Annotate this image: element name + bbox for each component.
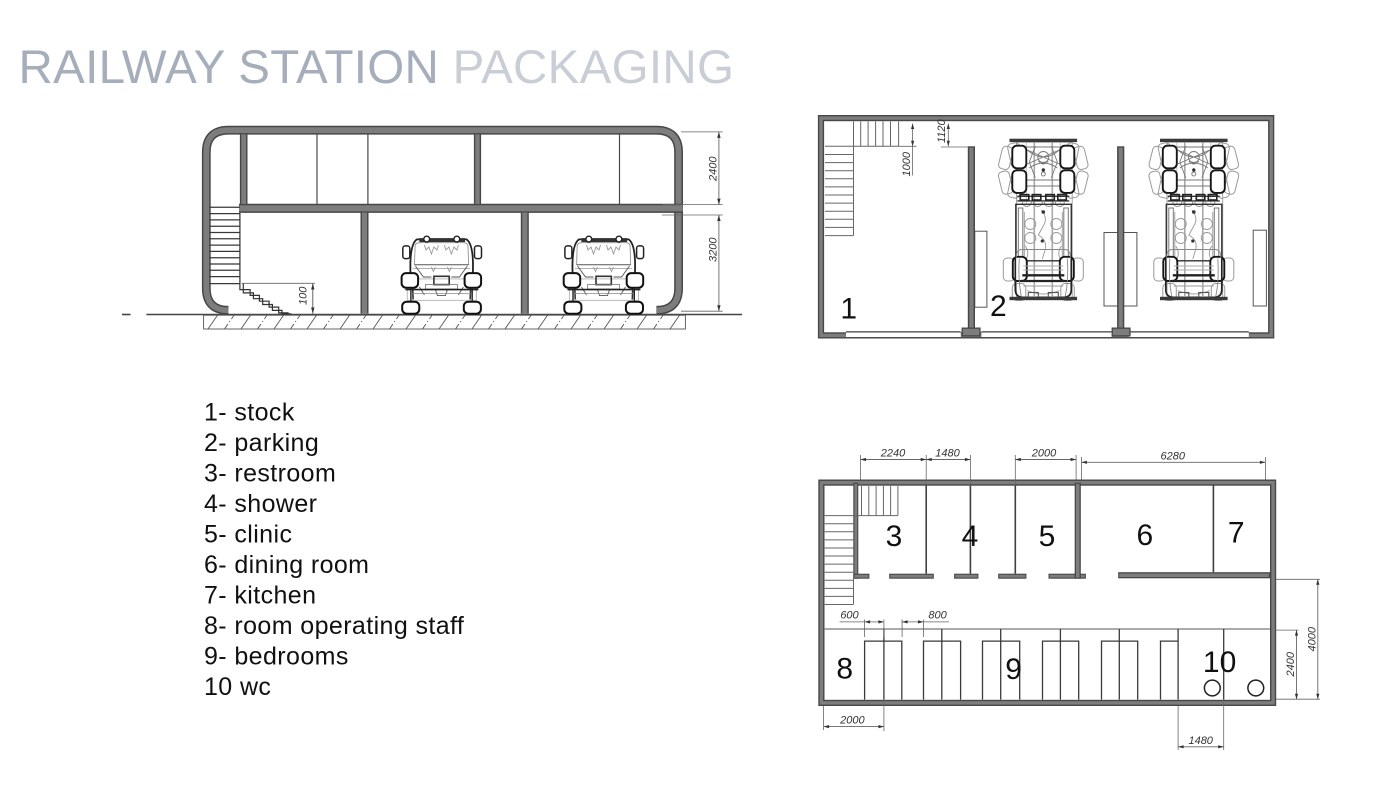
svg-text:9: 9 bbox=[1005, 653, 1022, 686]
svg-text:6- dining room: 6- dining room bbox=[204, 551, 369, 579]
svg-text:3200: 3200 bbox=[708, 237, 720, 262]
svg-text:10 wc: 10 wc bbox=[204, 673, 271, 701]
svg-text:600: 600 bbox=[840, 609, 859, 621]
svg-text:7- kitchen: 7- kitchen bbox=[204, 582, 316, 610]
svg-text:1480: 1480 bbox=[935, 448, 960, 460]
svg-text:100: 100 bbox=[298, 286, 310, 305]
svg-text:800: 800 bbox=[928, 609, 947, 621]
svg-text:2240: 2240 bbox=[880, 448, 906, 460]
svg-text:2: 2 bbox=[990, 290, 1007, 323]
svg-text:6: 6 bbox=[1137, 519, 1154, 552]
svg-text:RAILWAY STATION PACKAGING: RAILWAY STATION PACKAGING bbox=[19, 41, 735, 94]
svg-text:8: 8 bbox=[836, 653, 853, 686]
svg-text:2- parking: 2- parking bbox=[204, 429, 319, 457]
svg-text:2400: 2400 bbox=[1285, 651, 1297, 677]
svg-text:9- bedrooms: 9- bedrooms bbox=[204, 643, 349, 671]
svg-text:10: 10 bbox=[1203, 646, 1236, 679]
svg-text:8- room operating staff: 8- room operating staff bbox=[204, 612, 464, 640]
svg-text:1- stock: 1- stock bbox=[204, 399, 295, 427]
svg-text:3- restroom: 3- restroom bbox=[204, 460, 336, 488]
svg-text:1: 1 bbox=[840, 292, 857, 325]
svg-text:2000: 2000 bbox=[839, 715, 865, 727]
svg-text:1000: 1000 bbox=[901, 151, 913, 176]
svg-text:4: 4 bbox=[962, 520, 979, 553]
svg-text:2000: 2000 bbox=[1031, 448, 1057, 460]
svg-text:1120: 1120 bbox=[936, 118, 948, 143]
svg-text:5- clinic: 5- clinic bbox=[204, 521, 292, 549]
svg-text:5: 5 bbox=[1039, 520, 1056, 553]
svg-text:3: 3 bbox=[886, 520, 903, 553]
svg-text:7: 7 bbox=[1228, 517, 1245, 550]
svg-text:2400: 2400 bbox=[708, 156, 720, 182]
svg-text:4- shower: 4- shower bbox=[204, 490, 317, 518]
svg-text:1480: 1480 bbox=[1188, 735, 1213, 747]
svg-text:6280: 6280 bbox=[1161, 450, 1186, 462]
svg-text:4000: 4000 bbox=[1306, 626, 1318, 651]
